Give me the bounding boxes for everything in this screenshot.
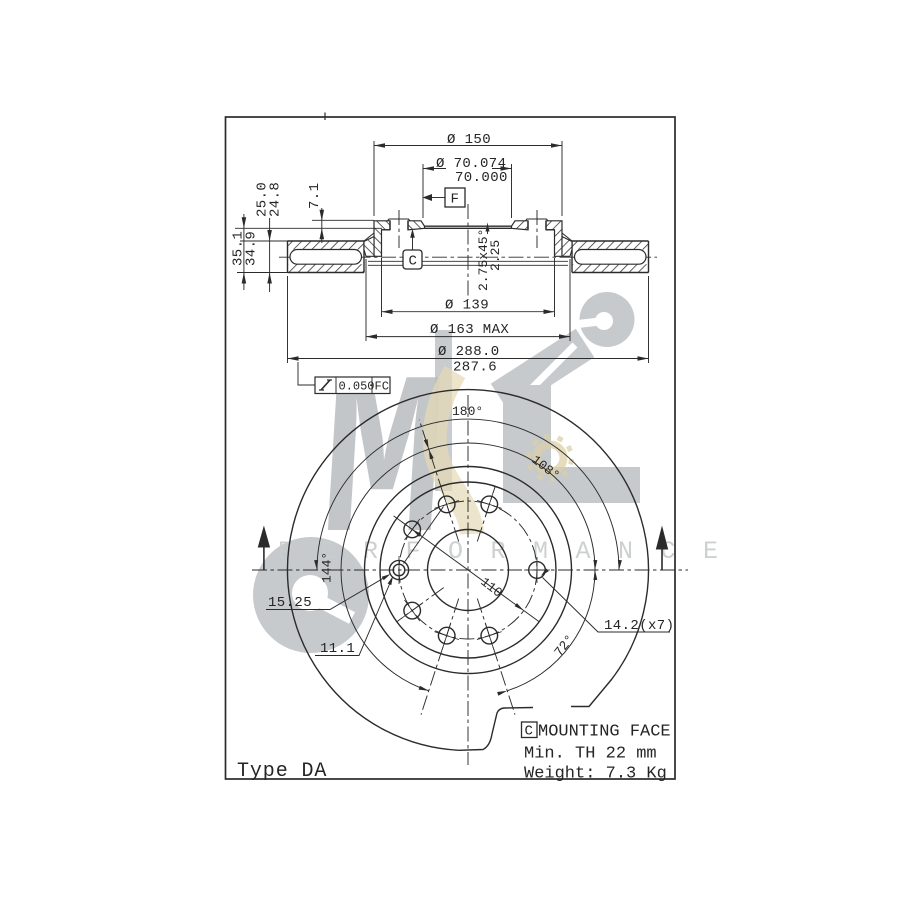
- svg-text:180°: 180°: [452, 404, 483, 419]
- svg-text:144°: 144°: [320, 552, 335, 583]
- svg-text:C: C: [525, 724, 533, 740]
- svg-text:Weight: 7.3 Kg: Weight: 7.3 Kg: [524, 765, 667, 784]
- svg-text:11.1: 11.1: [320, 641, 355, 657]
- svg-text:0.050: 0.050: [339, 380, 375, 394]
- svg-text:24.8: 24.8: [268, 182, 284, 217]
- svg-text:Ø 139: Ø 139: [445, 298, 489, 314]
- svg-text:287.6: 287.6: [453, 360, 497, 376]
- svg-text:34.9: 34.9: [244, 231, 260, 266]
- svg-text:15.25: 15.25: [268, 595, 312, 611]
- svg-text:C: C: [409, 254, 418, 270]
- svg-text:FC: FC: [375, 380, 389, 394]
- svg-text:Ø 163 MAX: Ø 163 MAX: [430, 322, 509, 338]
- svg-text:70.000: 70.000: [455, 170, 508, 186]
- svg-text:7.1: 7.1: [307, 183, 323, 209]
- svg-text:F: F: [451, 192, 460, 208]
- svg-text:2.25: 2.25: [488, 240, 503, 271]
- svg-text:Type DA: Type DA: [237, 760, 327, 783]
- svg-text:Min. TH 22 mm: Min. TH 22 mm: [524, 745, 657, 764]
- svg-text:Ø 288.0: Ø 288.0: [438, 344, 500, 360]
- svg-text:MOUNTING FACE: MOUNTING FACE: [538, 723, 671, 742]
